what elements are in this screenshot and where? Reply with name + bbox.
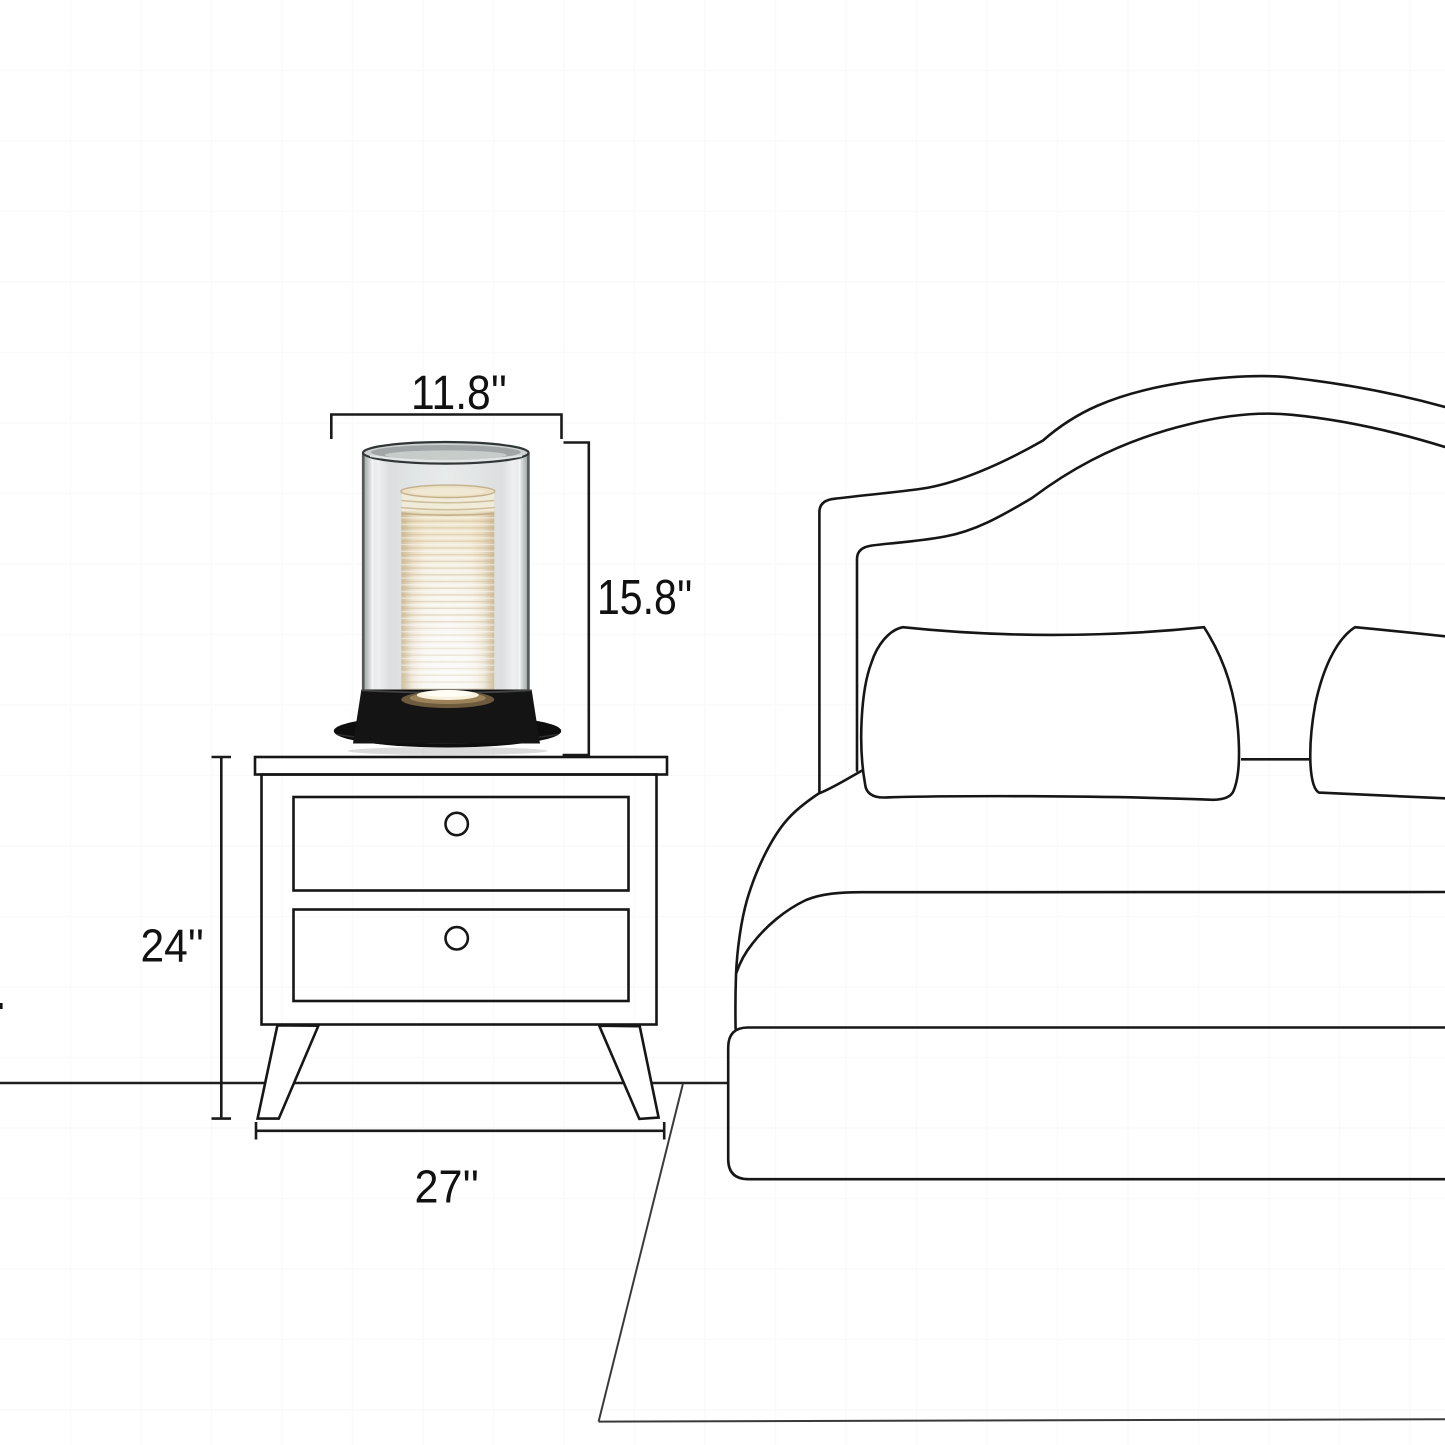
svg-text:24'': 24'' <box>141 920 205 972</box>
svg-text:15.8'': 15.8'' <box>597 570 693 625</box>
svg-text:11.8'': 11.8'' <box>411 366 507 420</box>
svg-text:27'': 27'' <box>415 1161 480 1213</box>
